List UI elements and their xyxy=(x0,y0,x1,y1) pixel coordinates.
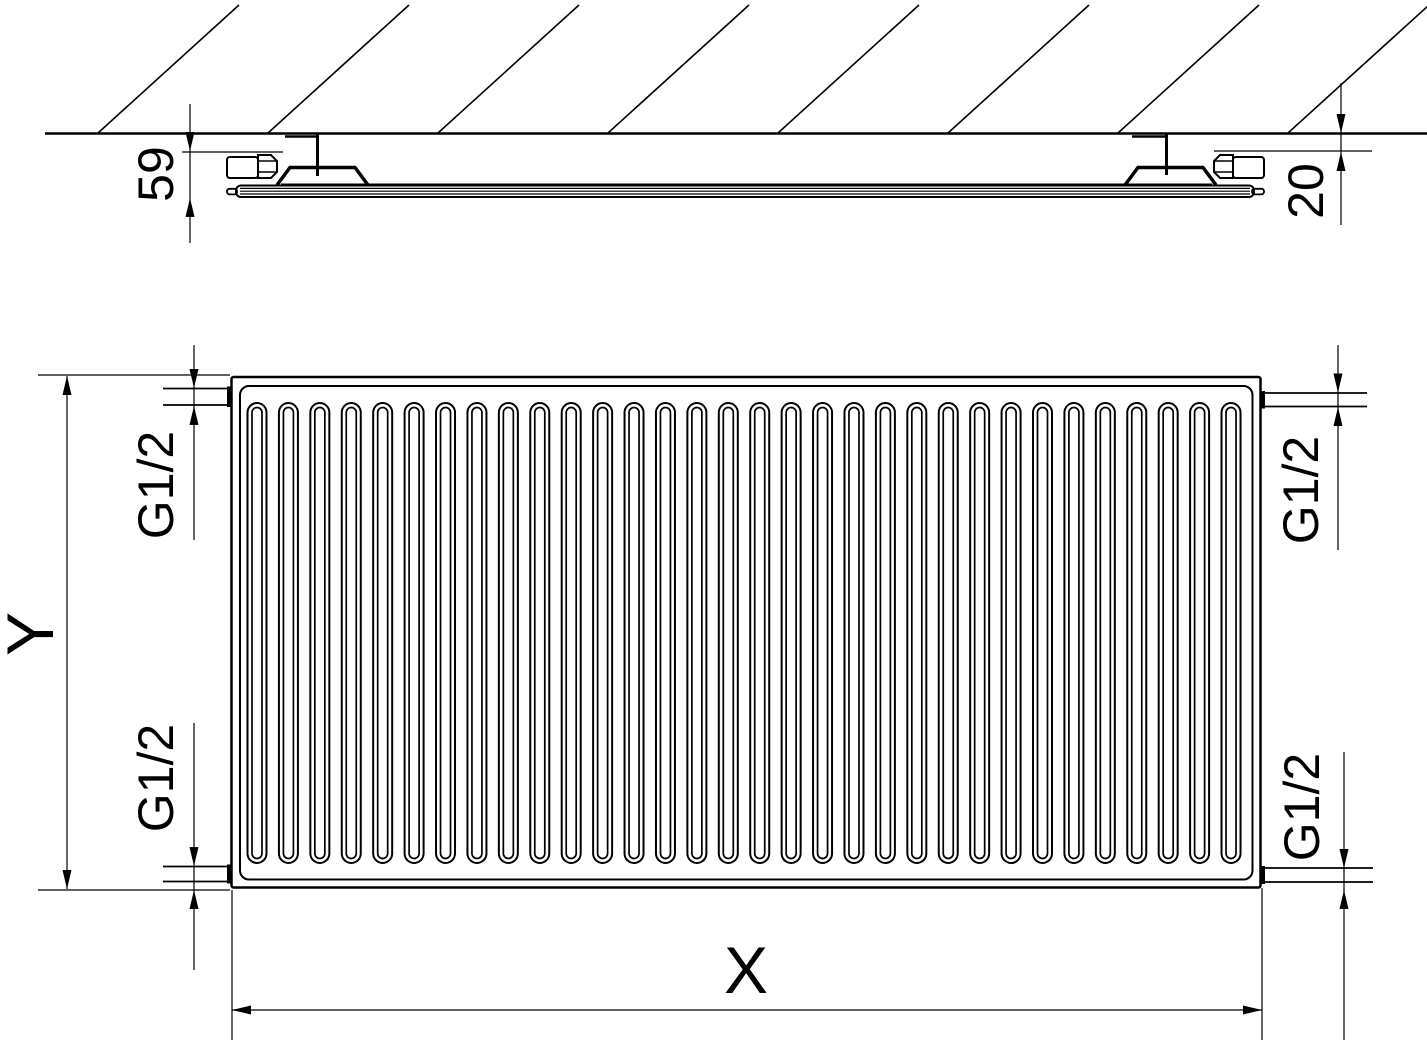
channel-line xyxy=(1195,408,1205,859)
channel-line xyxy=(818,408,828,859)
radiator-drawing-page: 59 20 xyxy=(0,0,1427,1051)
arrowhead-down xyxy=(63,870,72,889)
connection-label-bottom-left: G1/2 xyxy=(128,724,184,832)
channel-line xyxy=(1096,403,1115,863)
dimension-width-x: X xyxy=(232,888,1262,1040)
channel-line xyxy=(373,403,392,863)
channel-line xyxy=(499,403,518,863)
arrowhead-down xyxy=(1337,114,1346,133)
channel-line xyxy=(248,403,267,863)
channel-line xyxy=(750,403,769,863)
valve-left xyxy=(227,155,277,178)
channel-line xyxy=(378,408,388,859)
channel-line xyxy=(598,408,608,859)
channel-line xyxy=(786,408,796,859)
channel-line xyxy=(1038,408,1048,859)
channel-line xyxy=(660,408,670,859)
channel-line xyxy=(409,408,419,859)
depth-label: 59 xyxy=(128,146,184,202)
connection-stub-top-right xyxy=(1260,391,1368,409)
channel-line xyxy=(1159,403,1178,863)
dimension-connection-top-right: G1/2 xyxy=(1273,345,1343,550)
arrowhead-right xyxy=(1243,1006,1262,1015)
dimension-connection-bottom-right: G1/2 xyxy=(1274,752,1349,1040)
channel-line xyxy=(975,408,985,859)
connection-label-bottom-right: G1/2 xyxy=(1274,753,1330,861)
channel-line xyxy=(687,403,706,863)
dimension-height-y: Y xyxy=(0,375,230,890)
connection-stub-top-left xyxy=(163,387,233,408)
channel-line xyxy=(844,403,863,863)
channel-line xyxy=(692,408,702,859)
channel-line xyxy=(943,408,953,859)
channel-line xyxy=(252,408,262,859)
mounting-bracket-left xyxy=(277,133,368,185)
channel-line xyxy=(755,408,765,859)
connection-stub-bottom-left xyxy=(163,865,233,884)
channel-line xyxy=(1006,408,1016,859)
channel-line xyxy=(723,408,733,859)
channel-line xyxy=(535,408,545,859)
channel-line xyxy=(912,408,922,859)
channel-line xyxy=(405,403,424,863)
channel-line xyxy=(939,403,958,863)
radiator-top-view-panel xyxy=(227,185,1264,197)
radiator-channels xyxy=(248,403,1241,863)
channel-line xyxy=(629,408,639,859)
channel-line xyxy=(719,403,738,863)
channel-line xyxy=(1132,408,1142,859)
channel-line xyxy=(593,403,612,863)
connection-label-top-left: G1/2 xyxy=(128,431,184,539)
arrowhead-down xyxy=(186,132,195,151)
channel-line xyxy=(1064,403,1083,863)
arrowhead-up xyxy=(1337,152,1346,171)
channel-line xyxy=(315,408,325,859)
width-label: X xyxy=(724,933,768,1007)
front-view: Y X G1/2 G1/2 G1/2 xyxy=(0,345,1373,1040)
valve-right xyxy=(1214,155,1264,178)
dimension-wall-gap-20: 20 xyxy=(1214,83,1372,225)
channel-line xyxy=(1163,408,1173,859)
dimension-connection-bottom-left: G1/2 xyxy=(128,723,199,970)
channel-line xyxy=(813,403,832,863)
channel-line xyxy=(656,403,675,863)
arrowhead-left xyxy=(232,1006,251,1015)
channel-line xyxy=(472,408,482,859)
wall-gap-label: 20 xyxy=(1278,163,1334,219)
channel-line xyxy=(342,403,361,863)
channel-line xyxy=(1100,408,1110,859)
channel-line xyxy=(283,408,293,859)
channel-line xyxy=(1226,408,1236,859)
channel-line xyxy=(782,403,801,863)
channel-line xyxy=(503,408,513,859)
channel-line xyxy=(1002,403,1021,863)
connection-stub-bottom-right xyxy=(1260,866,1374,884)
wall-hatching xyxy=(98,5,1427,133)
channel-line xyxy=(1033,403,1052,863)
channel-line xyxy=(436,403,455,863)
channel-line xyxy=(876,403,895,863)
height-label: Y xyxy=(0,612,67,656)
mounting-bracket-right xyxy=(1125,133,1216,185)
channel-line xyxy=(907,403,926,863)
arrowhead-up xyxy=(186,198,195,217)
dimension-connection-top-left: G1/2 xyxy=(128,345,199,540)
channel-line xyxy=(530,403,549,863)
channel-line xyxy=(849,408,859,859)
channel-line xyxy=(279,403,298,863)
channel-line xyxy=(566,408,576,859)
channel-line xyxy=(467,403,486,863)
channel-line xyxy=(562,403,581,863)
arrowhead-up xyxy=(63,376,72,395)
radiator-outer-frame xyxy=(232,377,1261,888)
channel-line xyxy=(1069,408,1079,859)
channel-line xyxy=(310,403,329,863)
radiator-front-body xyxy=(232,377,1261,888)
channel-line xyxy=(1127,403,1146,863)
radiator-drawing: 59 20 xyxy=(0,0,1427,1051)
channel-line xyxy=(1222,403,1241,863)
channel-line xyxy=(880,408,890,859)
dimension-depth-59: 59 xyxy=(128,104,283,243)
connection-label-top-right: G1/2 xyxy=(1273,436,1329,544)
channel-line xyxy=(1190,403,1209,863)
channel-line xyxy=(346,408,356,859)
channel-line xyxy=(441,408,451,859)
channel-line xyxy=(970,403,989,863)
top-view: 59 20 xyxy=(45,5,1427,243)
channel-line xyxy=(625,403,644,863)
